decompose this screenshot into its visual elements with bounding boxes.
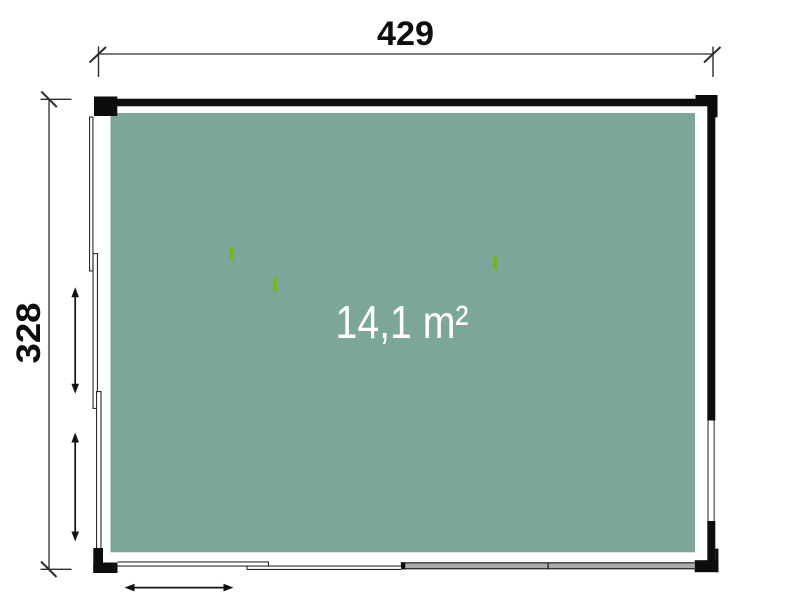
svg-text:328: 328 [10,303,48,364]
svg-text:14,1 m²: 14,1 m² [336,296,469,348]
svg-text:429: 429 [377,15,434,53]
